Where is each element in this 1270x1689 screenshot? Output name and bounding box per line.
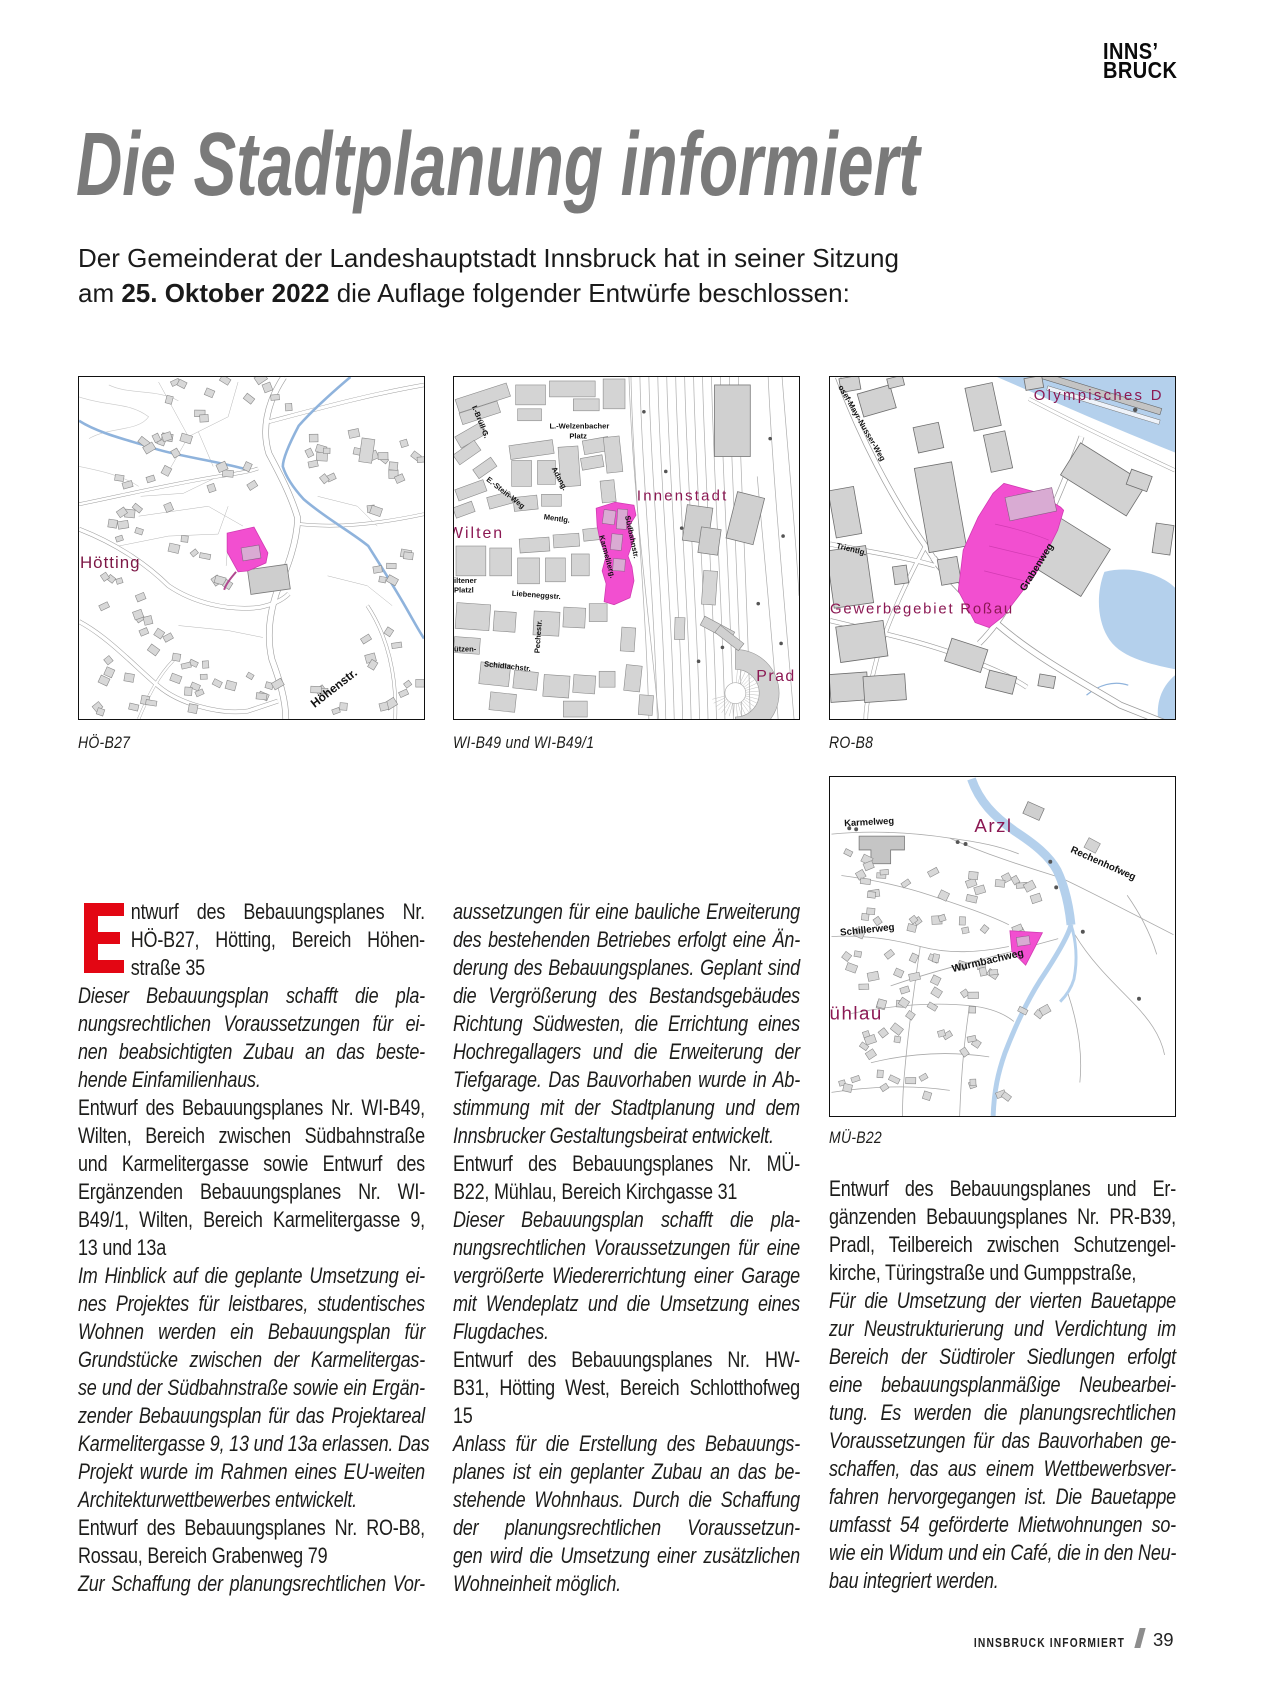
svg-text:Platz: Platz bbox=[569, 432, 587, 441]
svg-text:Gewerbegebiet Roßau: Gewerbegebiet Roßau bbox=[830, 602, 1014, 618]
svg-text:Innenstadt: Innenstadt bbox=[637, 488, 729, 504]
svg-text:ühlau: ühlau bbox=[830, 1002, 883, 1023]
svg-text:Prad: Prad bbox=[756, 668, 796, 685]
svg-text:Arzl: Arzl bbox=[974, 815, 1012, 836]
svg-text:iltener: iltener bbox=[454, 576, 477, 585]
svg-text:ützen-: ützen- bbox=[454, 644, 477, 653]
svg-text:Olympisches D: Olympisches D bbox=[1034, 388, 1164, 404]
svg-text:L.-Welzenbacher: L.-Welzenbacher bbox=[549, 422, 609, 431]
svg-text:Wilten: Wilten bbox=[453, 525, 504, 542]
svg-text:Platzl: Platzl bbox=[454, 586, 474, 595]
svg-text:Hötting: Hötting bbox=[80, 553, 140, 572]
